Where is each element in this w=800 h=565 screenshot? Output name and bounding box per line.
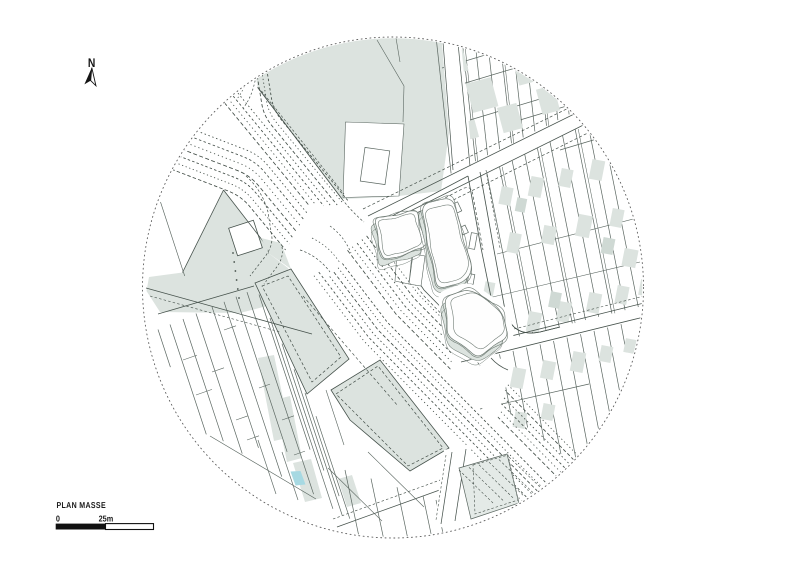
svg-text:0: 0 [56, 513, 60, 523]
svg-text:PLAN MASSE: PLAN MASSE [57, 500, 106, 510]
svg-text:25m: 25m [99, 513, 114, 523]
